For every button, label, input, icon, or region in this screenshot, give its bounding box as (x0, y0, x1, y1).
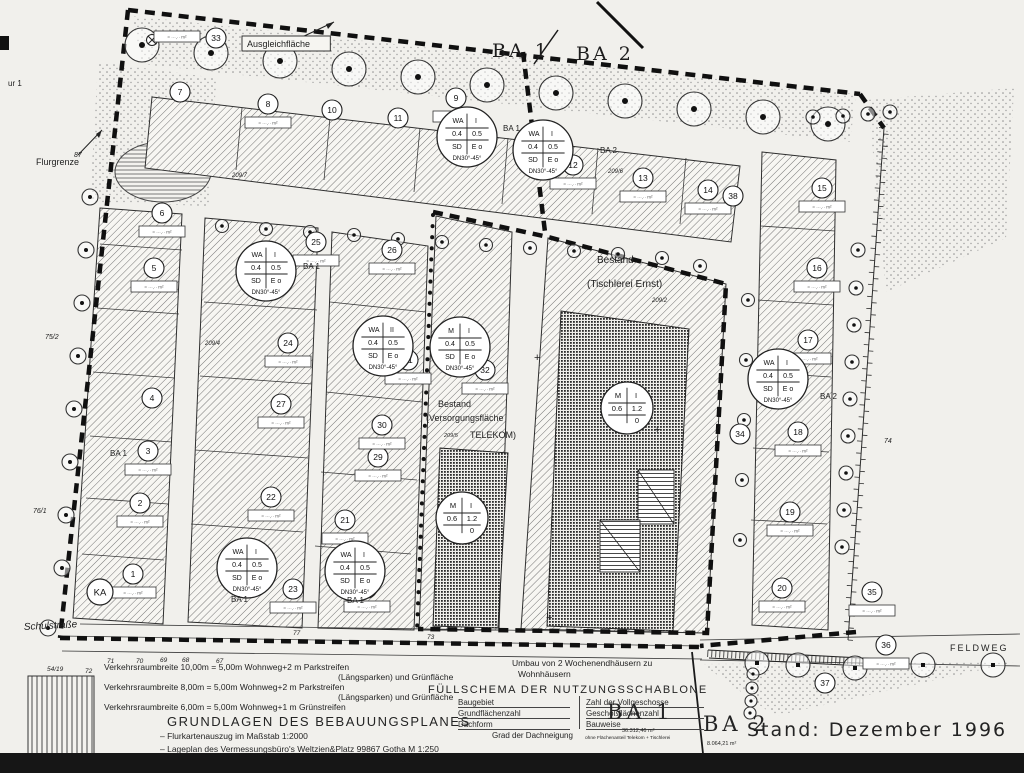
tree-icon (846, 434, 850, 438)
tree-icon (660, 256, 664, 260)
tree-icon (277, 58, 283, 64)
map-label: 77 (293, 630, 301, 637)
dim-box-text: ≈ ···,·· m² (259, 121, 278, 126)
tree-icon (740, 478, 744, 482)
schablone-text: 0.5 (783, 373, 793, 380)
map-label: 75/2 (45, 334, 59, 341)
tree-icon (264, 227, 268, 231)
map-label: Bestand (438, 399, 471, 409)
plot-number: 24 (283, 338, 293, 348)
map-label: ur 1 (8, 79, 22, 88)
schablone-text: I (635, 391, 637, 400)
map-label: 209/7 (231, 173, 248, 179)
dim-box-text: ≈ ···,·· m² (476, 387, 495, 392)
schablone-text: 0.4 (368, 340, 378, 347)
plot-number: 34 (735, 429, 745, 439)
schablone-text: SD (452, 144, 462, 151)
tree-icon (853, 666, 857, 670)
schablone-text: 0 (470, 526, 474, 535)
map-label: + (534, 352, 540, 364)
schablone-text: 0.5 (472, 131, 482, 138)
parcel-line (700, 634, 1020, 640)
plot-number: 29 (373, 452, 383, 462)
plot-number: 4 (150, 393, 155, 403)
tree-icon (698, 264, 702, 268)
map-label: BA 1 (492, 40, 550, 62)
map-label: (Tischlerei Ernst) (587, 279, 662, 290)
tree-icon (553, 90, 559, 96)
plot-number: 19 (785, 507, 795, 517)
plot-number: 9 (454, 93, 459, 103)
tree-icon (825, 121, 831, 127)
schablone-text: WA (251, 252, 262, 259)
ba1-note: ohne Flächenanteil Telekom + Tischlerei (585, 736, 670, 741)
schablone-text: E o (472, 144, 483, 151)
ba1-label: BA 1 (607, 700, 674, 724)
map-label: (Versorgungsfläche (426, 413, 504, 423)
dim-box-text: ≈ ···,·· m² (139, 468, 158, 473)
tree-icon (991, 663, 995, 667)
schablone-text: WA (340, 552, 351, 559)
map-label: 209/4 (204, 341, 221, 347)
umbau-note-2: Wohnhäusern (518, 669, 571, 679)
plot-number: 25 (311, 237, 321, 247)
tree-icon (755, 661, 759, 665)
plot-number: 15 (817, 183, 827, 193)
dim-box-text: ≈ ···,·· m² (131, 520, 150, 525)
fence-line (848, 128, 884, 640)
tree-icon (751, 672, 754, 675)
tree-icon (440, 240, 444, 244)
dim-box-text: ≈ ···,·· m² (863, 609, 882, 614)
plot-number: 37 (820, 678, 830, 688)
tree-icon (888, 110, 892, 114)
plot-number: 7 (178, 87, 183, 97)
schablone-text: DN30°-45° (453, 156, 482, 162)
schablone-text: I (786, 360, 788, 367)
schablone-text: I (363, 552, 365, 559)
scanned-development-plan: 1≈ ···,·· m²2≈ ···,·· m²3≈ ···,·· m²45≈ … (0, 0, 1024, 773)
map-label: Ausgleichfläche (247, 39, 310, 49)
tree-icon (484, 82, 490, 88)
schablone-text: E o (388, 353, 399, 360)
ka-marker-label: KA (94, 588, 107, 599)
tree-icon (844, 471, 848, 475)
schablone-text: SD (763, 386, 773, 393)
plot-number: 22 (266, 492, 276, 502)
tree-icon (88, 195, 92, 199)
schablone-text: I (475, 118, 477, 125)
map-label: BA 2 (600, 146, 617, 155)
fs-baugebiet: Baugebiet (458, 698, 570, 708)
tree-icon (811, 115, 815, 119)
map-label: 74 (884, 438, 892, 445)
schablone-text: SD (251, 278, 261, 285)
plan-basis-2: – Lageplan des Vermessungsbüro's Weltzie… (160, 744, 439, 754)
tree-icon (850, 360, 854, 364)
tree-icon (622, 98, 628, 104)
map-label: + (654, 424, 660, 436)
map-label: 72 (85, 668, 93, 675)
dim-box-text: ≈ ···,·· m² (262, 514, 281, 519)
tree-icon (921, 663, 925, 667)
tree-icon (854, 286, 858, 290)
schablone-text: 0 (635, 416, 639, 425)
plot-number: 6 (160, 208, 165, 218)
dim-box-text: ≈ ···,·· m² (284, 606, 303, 611)
fs-dachneigung: Grad der Dachneigung (492, 731, 573, 740)
tree-icon (208, 50, 214, 56)
schablone-text: 0.5 (548, 144, 558, 151)
plot-number: 26 (387, 245, 397, 255)
dim-box-text: ≈ ···,·· m² (564, 182, 583, 187)
schablone-text: 0.4 (232, 562, 242, 569)
tree-icon (72, 407, 76, 411)
tree-icon (750, 686, 753, 689)
map-label: BA 2 (820, 392, 837, 401)
dim-box-text: ≈ ···,·· m² (789, 449, 808, 454)
plot-number: 18 (793, 427, 803, 437)
tree-icon (484, 243, 488, 247)
plan-boundary (60, 638, 700, 647)
dim-box-text: ≈ ···,·· m² (373, 442, 392, 447)
plot-number: 3 (146, 446, 151, 456)
plan-boundary (700, 632, 856, 646)
tree-icon (760, 114, 766, 120)
scan-fold-line (597, 2, 643, 48)
schablone-text: E o (252, 575, 263, 582)
legend-line-6m: Verkehrsraumbreite 6,00m = 5,00m Wohnweg… (104, 702, 346, 712)
schablone-text: SD (232, 575, 242, 582)
map-label: TELEKOM) (470, 430, 516, 440)
map-label: BA 1 (110, 449, 127, 458)
schablone-text: 0.6 (447, 514, 457, 523)
tree-icon (738, 538, 742, 542)
map-label: BA 1 (303, 262, 320, 271)
map-label: 209/2 (651, 298, 668, 304)
schablone-text: I (470, 501, 472, 510)
schablone-text: 0.5 (465, 341, 475, 348)
plot-number: 27 (276, 399, 286, 409)
tree-icon (848, 397, 852, 401)
tree-icon (572, 249, 576, 253)
legend-line-10m-cont: (Längsparken) und Grünfläche (338, 672, 453, 682)
tree-icon (842, 508, 846, 512)
schablone-text: I (255, 549, 257, 556)
dim-box-text: ≈ ···,·· m² (168, 35, 187, 40)
dim-box-text: ≈ ···,·· m² (808, 285, 827, 290)
tree-icon (68, 460, 72, 464)
map-label: 209/5 (443, 433, 459, 439)
schablone-text: E o (548, 157, 559, 164)
tree-icon (84, 248, 88, 252)
tree-icon (220, 224, 224, 228)
schablone-text: WA (528, 131, 539, 138)
schablone-text: 0.4 (763, 373, 773, 380)
plot-number: 10 (327, 105, 337, 115)
schablone-text: WA (368, 327, 379, 334)
tree-icon (742, 418, 746, 422)
map-label: BA 2 (576, 43, 634, 65)
dim-box-text: ≈ ···,·· m² (773, 605, 792, 610)
tree-icon (840, 545, 844, 549)
plot-number: 2 (138, 498, 143, 508)
dim-box-text: ≈ ···,·· m² (369, 474, 388, 479)
dim-box-text: ≈ ···,·· m² (279, 360, 298, 365)
map-label: 87 (74, 152, 83, 159)
tree-icon (852, 323, 856, 327)
tree-icon (80, 301, 84, 305)
schablone-text: SD (340, 578, 350, 585)
schablone-text: I (274, 252, 276, 259)
dim-box-text: ≈ ···,·· m² (358, 605, 377, 610)
schablone-text: SD (445, 354, 455, 361)
plot-number: 11 (394, 113, 403, 123)
schablone-text: M (615, 391, 621, 400)
schablone-text: WA (452, 118, 463, 125)
map-label: + (546, 612, 552, 624)
plot-number: 1 (131, 569, 136, 579)
schablone-text: DN30°-45° (233, 587, 262, 593)
schablone-text: DN30°-45° (341, 590, 370, 596)
schablone-text: II (390, 327, 394, 334)
plot-number: 38 (728, 191, 738, 201)
plan-basis-1: – Flurkartenauszug im Maßstab 1:2000 (160, 731, 308, 741)
schablone-text: 1.2 (467, 514, 477, 523)
plot-number: 30 (377, 420, 387, 430)
ba2-area: 8.064,21 m² (707, 741, 736, 747)
plot-number: 33 (211, 33, 221, 43)
legend-line-10m: Verkehrsraumbreite 10,00m = 5,00m Wohnwe… (104, 662, 349, 672)
schablone-text: M (450, 501, 456, 510)
schablone-text: 0.4 (251, 265, 261, 272)
schablone-text: E o (360, 578, 371, 585)
map-label: 209/6 (607, 169, 624, 175)
tree-icon (691, 106, 697, 112)
umbau-note-1: Umbau von 2 Wochenendhäusern zu (512, 658, 652, 668)
plot-number: 35 (867, 587, 877, 597)
map-label: 73 (427, 634, 435, 641)
schablone-text: M (448, 328, 454, 335)
plot-number: 14 (703, 185, 713, 195)
plot-number: 16 (812, 263, 822, 273)
map-label: 76/1 (33, 508, 47, 515)
tree-icon (346, 66, 352, 72)
map-label: FELDWEG (950, 643, 1009, 653)
schablone-text: 0.5 (271, 265, 281, 272)
tree-icon (841, 114, 845, 118)
scan-edge-mark (0, 36, 9, 50)
tree-icon (746, 298, 750, 302)
tree-icon (796, 663, 800, 667)
tree-icon (64, 513, 68, 517)
map-label: BA 1 (347, 596, 364, 605)
schablone-text: 0.5 (388, 340, 398, 347)
building-block (73, 208, 182, 624)
scan-bottom-edge (0, 753, 1024, 773)
tree-icon (60, 566, 64, 570)
schablone-text: E o (465, 354, 476, 361)
dim-box-text: ≈ ···,·· m² (699, 207, 718, 212)
plot-number: 5 (152, 263, 157, 273)
schablone-text: WA (232, 549, 243, 556)
map-label: Bestand (597, 255, 634, 266)
dim-box-text: ≈ ···,·· m² (634, 195, 653, 200)
schablone-text: SD (368, 353, 378, 360)
schablone-text: DN30°-45° (252, 290, 281, 296)
schablone-text: 1.2 (632, 404, 642, 413)
plot-number: 20 (777, 583, 787, 593)
map-label: Schulstraße (24, 619, 78, 633)
plot-number: 21 (340, 515, 350, 525)
plot-number: 23 (288, 584, 298, 594)
map-label: 54/19 (47, 666, 64, 673)
schablone-text: 0.5 (252, 562, 262, 569)
schablone-text: 0.4 (528, 144, 538, 151)
tree-icon (352, 233, 356, 237)
schablone-text: 0.4 (340, 565, 350, 572)
tree-icon (856, 248, 860, 252)
dim-box-text: ≈ ···,·· m² (153, 230, 172, 235)
map-label: BA 1 (231, 595, 248, 604)
schablone-text: DN30°-45° (369, 365, 398, 371)
schablone-text: 0.5 (360, 565, 370, 572)
schablone-text: SD (528, 157, 538, 164)
map-label: BA 1 (503, 124, 520, 133)
schablone-text: I (468, 328, 470, 335)
schablone-text: E o (271, 278, 282, 285)
schablone-text: 0.6 (612, 404, 622, 413)
plot-number: 8 (266, 99, 271, 109)
schablone-text: 0.4 (452, 131, 462, 138)
map-label: Flurgrenze (36, 157, 79, 167)
dim-box-text: ≈ ···,·· m² (781, 529, 800, 534)
schablone-text: DN30°-45° (446, 366, 475, 372)
ba1-area: 36.312,46 m² (622, 728, 654, 734)
plot-number: 36 (881, 640, 891, 650)
dim-box-text: ≈ ···,·· m² (399, 377, 418, 382)
plot-number: 17 (803, 335, 813, 345)
fs-dachform: Dachform (458, 720, 570, 730)
schablone-text: 0.4 (445, 341, 455, 348)
dim-box-text: ≈ ···,·· m² (145, 285, 164, 290)
dim-box-text: ≈ ···,·· m² (813, 205, 832, 210)
survey-arrow (326, 22, 334, 29)
dim-box-text: ≈ ···,·· m² (272, 421, 291, 426)
schablone-text: I (551, 131, 553, 138)
tree-icon (76, 354, 80, 358)
tree-icon (396, 237, 400, 241)
legend-line-8m: Verkehrsraumbreite 8,00m = 5,00m Wohnweg… (104, 682, 344, 692)
schablone-text: E o (783, 386, 794, 393)
tree-icon (749, 699, 752, 702)
dim-box-text: ≈ ···,·· m² (383, 267, 402, 272)
tree-icon (528, 246, 532, 250)
dim-box-text: ≈ ···,·· m² (877, 662, 896, 667)
plot-number: 13 (638, 173, 648, 183)
tree-icon (866, 112, 870, 116)
tree-icon (415, 74, 421, 80)
tree-icon (139, 42, 145, 48)
plan-title: GRUNDLAGEN DES BEBAUUNGSPLANES (167, 714, 471, 729)
stand-date: Stand: Dezember 1996 (747, 719, 1007, 741)
dim-box-text: ≈ ···,·· m² (124, 591, 143, 596)
fs-divider (579, 696, 580, 729)
schablone-text: WA (763, 360, 774, 367)
schablone-text: DN30°-45° (764, 398, 793, 404)
fs-grz: Grundflächenzahl (458, 709, 570, 719)
fuellschema-title: FÜLLSCHEMA DER NUTZUNGSSCHABLONE (428, 684, 708, 696)
schablone-text: DN30°-45° (529, 169, 558, 175)
tree-icon (744, 358, 748, 362)
